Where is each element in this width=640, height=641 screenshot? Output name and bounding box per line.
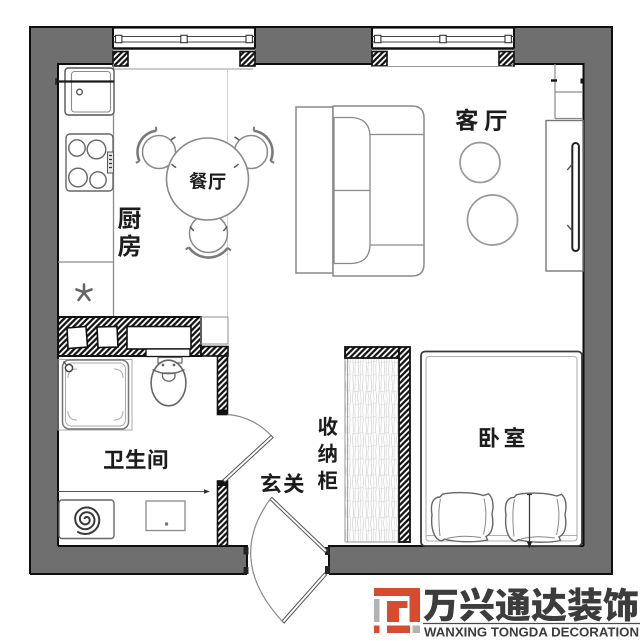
svg-text:WANXING TONGDA DECORATION: WANXING TONGDA DECORATION [424,625,639,640]
